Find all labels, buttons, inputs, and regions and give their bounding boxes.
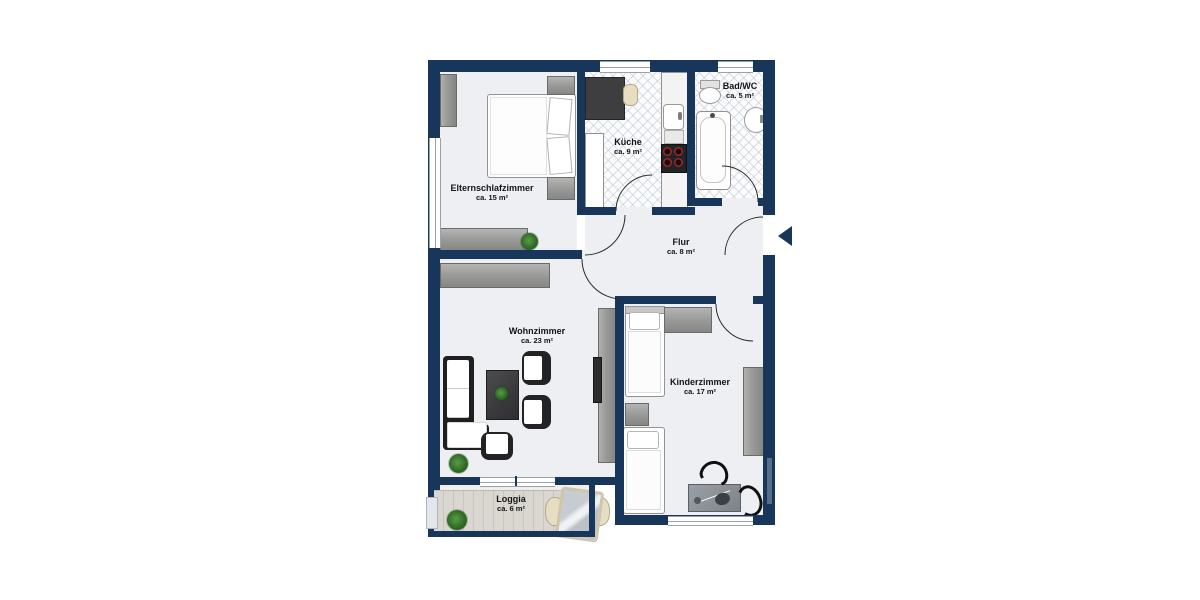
sofa-cushions (447, 360, 469, 418)
room-area: ca. 23 m² (509, 336, 565, 345)
room-area: ca. 15 m² (450, 193, 533, 202)
entrance-door-opening (763, 215, 775, 255)
room-name: Loggia (496, 494, 526, 504)
plant (521, 233, 538, 250)
bathtub-faucet (710, 113, 715, 118)
kitchen-cabinet (585, 133, 604, 209)
room-area: ca. 8 m² (667, 247, 695, 256)
wall-wohnzimmer-kinderzimmer (615, 296, 624, 515)
window-schlafzimmer (429, 138, 441, 248)
wall-loggia-bottom (428, 531, 595, 537)
sideboard (440, 263, 550, 288)
plant-on-table (495, 387, 508, 400)
bed-pillow (629, 312, 660, 330)
sideboard (440, 228, 528, 251)
window-bad (718, 61, 753, 73)
dining-chair (623, 84, 638, 106)
watermark-strip (767, 458, 772, 504)
window-kinderzimmer (668, 516, 753, 526)
stove-burner (674, 158, 683, 167)
armchair-seat (524, 400, 542, 424)
dining-table (585, 77, 625, 120)
wall-kueche-west (577, 72, 585, 215)
nightstand (547, 177, 575, 200)
nightstand (625, 403, 649, 426)
room-name: Bad/WC (723, 81, 758, 91)
room-area: ca. 17 m² (670, 387, 730, 396)
bathtub-basin (700, 117, 726, 183)
cabinet (664, 307, 712, 333)
plant (447, 510, 467, 530)
wall-bad-south-b (758, 198, 763, 206)
kitchen-faucet (678, 112, 682, 120)
entrance-arrow-icon (778, 226, 792, 246)
room-label-kueche: Küche ca. 9 m² (614, 137, 642, 156)
window-kueche (600, 61, 650, 73)
stove-burner (663, 147, 672, 156)
kitchen-tray (664, 130, 684, 144)
room-label-elternschlafzimmer: Elternschlafzimmer ca. 15 m² (450, 183, 533, 202)
bed-pillow (546, 97, 572, 136)
wall-bad-south-a (695, 198, 722, 206)
stove-burner (663, 158, 672, 167)
wardrobe (743, 367, 765, 456)
room-area: ca. 5 m² (723, 91, 758, 100)
loggia-tuer-teiler (515, 476, 517, 486)
room-name: Küche (614, 137, 642, 147)
wall-loggia-north-b (555, 477, 615, 485)
room-label-kinderzimmer: Kinderzimmer ca. 17 m² (670, 377, 730, 396)
room-name: Wohnzimmer (509, 326, 565, 336)
wall-divider-schlafzimmer (428, 250, 582, 259)
wall-outer-right (763, 60, 775, 515)
room-label-loggia: Loggia ca. 6 m² (496, 494, 526, 513)
wardrobe (440, 74, 457, 127)
armchair-seat (524, 356, 542, 380)
schlafzimmer-door-opening (577, 215, 585, 250)
room-label-flur: Flur ca. 8 m² (667, 237, 695, 256)
bed-duvet (490, 97, 547, 175)
room-label-wohnzimmer: Wohnzimmer ca. 23 m² (509, 326, 565, 345)
desk-item (694, 497, 701, 504)
stove-burner (674, 147, 683, 156)
wall-kinderzimmer-north-b (753, 296, 763, 304)
room-area: ca. 9 m² (614, 147, 642, 156)
watermark-tag (426, 497, 438, 529)
wall-kueche-south-a (577, 207, 616, 215)
wall-kinderzimmer-north-a (615, 296, 716, 304)
window-loggia-tuer (480, 477, 555, 487)
wall-outer-left (428, 60, 440, 490)
toilet (699, 87, 721, 104)
wall-loggia-right (589, 485, 595, 537)
tv (593, 357, 602, 403)
room-name: Kinderzimmer (670, 377, 730, 387)
chair-seat (486, 434, 508, 454)
bed-duvet (628, 331, 661, 393)
wall-bad-west (687, 72, 695, 206)
room-label-bad-wc: Bad/WC ca. 5 m² (723, 81, 758, 100)
bed-pillow (627, 431, 659, 449)
plant (449, 454, 468, 473)
nightstand (547, 76, 575, 95)
room-area: ca. 6 m² (496, 504, 526, 513)
wall-kueche-south-b (652, 207, 695, 215)
room-name: Elternschlafzimmer (450, 183, 533, 193)
wall-loggia-north-a (428, 477, 480, 485)
bed-duvet (626, 450, 661, 510)
floor-plan-canvas: Elternschlafzimmer ca. 15 m² Küche ca. 9… (0, 0, 1200, 600)
room-name: Flur (667, 237, 695, 247)
bed-pillow (546, 136, 572, 175)
